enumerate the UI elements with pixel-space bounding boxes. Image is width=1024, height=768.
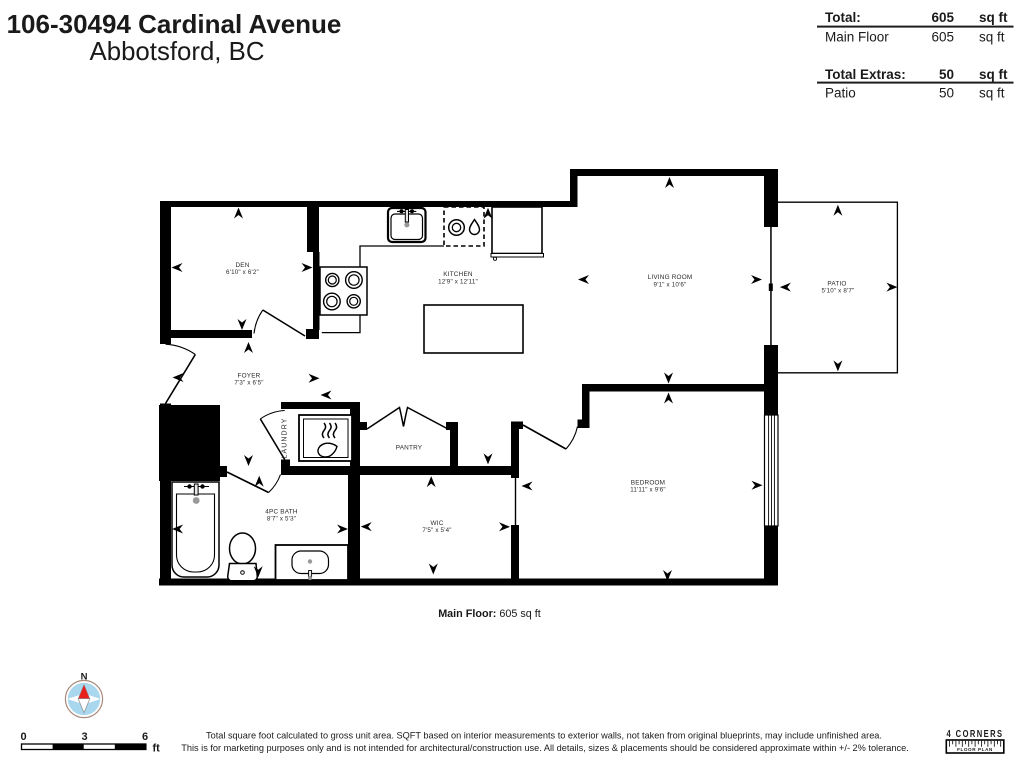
svg-text:50: 50 <box>939 86 954 101</box>
svg-text:12'9" x 12'11": 12'9" x 12'11" <box>438 279 478 286</box>
svg-text:0: 0 <box>20 731 26 743</box>
svg-text:sq ft: sq ft <box>979 10 1008 25</box>
svg-text:sq ft: sq ft <box>979 86 1005 101</box>
svg-text:Total Extras:: Total Extras: <box>825 67 906 82</box>
svg-text:PANTRY: PANTRY <box>396 445 423 452</box>
svg-text:605: 605 <box>931 30 954 45</box>
svg-text:9'1" x 10'6": 9'1" x 10'6" <box>654 282 687 289</box>
svg-text:Abbotsford, BC: Abbotsford, BC <box>90 38 265 66</box>
svg-text:7'5" x 5'4": 7'5" x 5'4" <box>422 527 451 534</box>
svg-text:Patio: Patio <box>825 86 856 101</box>
svg-text:5'10" x 8'7": 5'10" x 8'7" <box>822 288 855 295</box>
svg-text:LAUNDRY: LAUNDRY <box>282 417 289 458</box>
svg-text:Total:: Total: <box>825 10 861 25</box>
svg-text:KITCHEN: KITCHEN <box>443 271 473 278</box>
svg-text:ft: ft <box>153 743 161 755</box>
svg-text:LIVING ROOM: LIVING ROOM <box>648 274 693 281</box>
svg-text:4 CORNERS: 4 CORNERS <box>947 728 1004 740</box>
svg-text:Total square foot calculated t: Total square foot calculated to gross un… <box>206 731 882 741</box>
svg-text:106-30494 Cardinal Avenue: 106-30494 Cardinal Avenue <box>7 9 342 39</box>
svg-text:7'3" x 6'5": 7'3" x 6'5" <box>234 380 263 387</box>
svg-text:8'7" x 5'3": 8'7" x 5'3" <box>267 516 296 523</box>
svg-text:11'11" x 9'6": 11'11" x 9'6" <box>630 487 666 494</box>
svg-text:PATIO: PATIO <box>827 281 846 288</box>
svg-text:Main Floor: Main Floor <box>825 30 889 45</box>
svg-text:FLOOR PLAN: FLOOR PLAN <box>957 747 993 752</box>
svg-text:Main Floor: 605 sq ft: Main Floor: 605 sq ft <box>438 608 541 620</box>
svg-text:DEN: DEN <box>235 262 249 269</box>
svg-text:6'10" x 6'2": 6'10" x 6'2" <box>226 269 259 276</box>
svg-text:6: 6 <box>142 731 148 743</box>
svg-text:sq ft: sq ft <box>979 67 1008 82</box>
svg-text:4PC BATH: 4PC BATH <box>265 509 298 516</box>
svg-text:3: 3 <box>81 731 87 743</box>
svg-text:50: 50 <box>939 67 954 82</box>
svg-text:605: 605 <box>931 10 954 25</box>
svg-text:WIC: WIC <box>430 520 443 527</box>
svg-text:FOYER: FOYER <box>237 373 260 380</box>
svg-text:BEDROOM: BEDROOM <box>631 480 665 487</box>
svg-text:sq ft: sq ft <box>979 30 1005 45</box>
svg-text:This is for marketing purposes: This is for marketing purposes only and … <box>181 743 908 753</box>
